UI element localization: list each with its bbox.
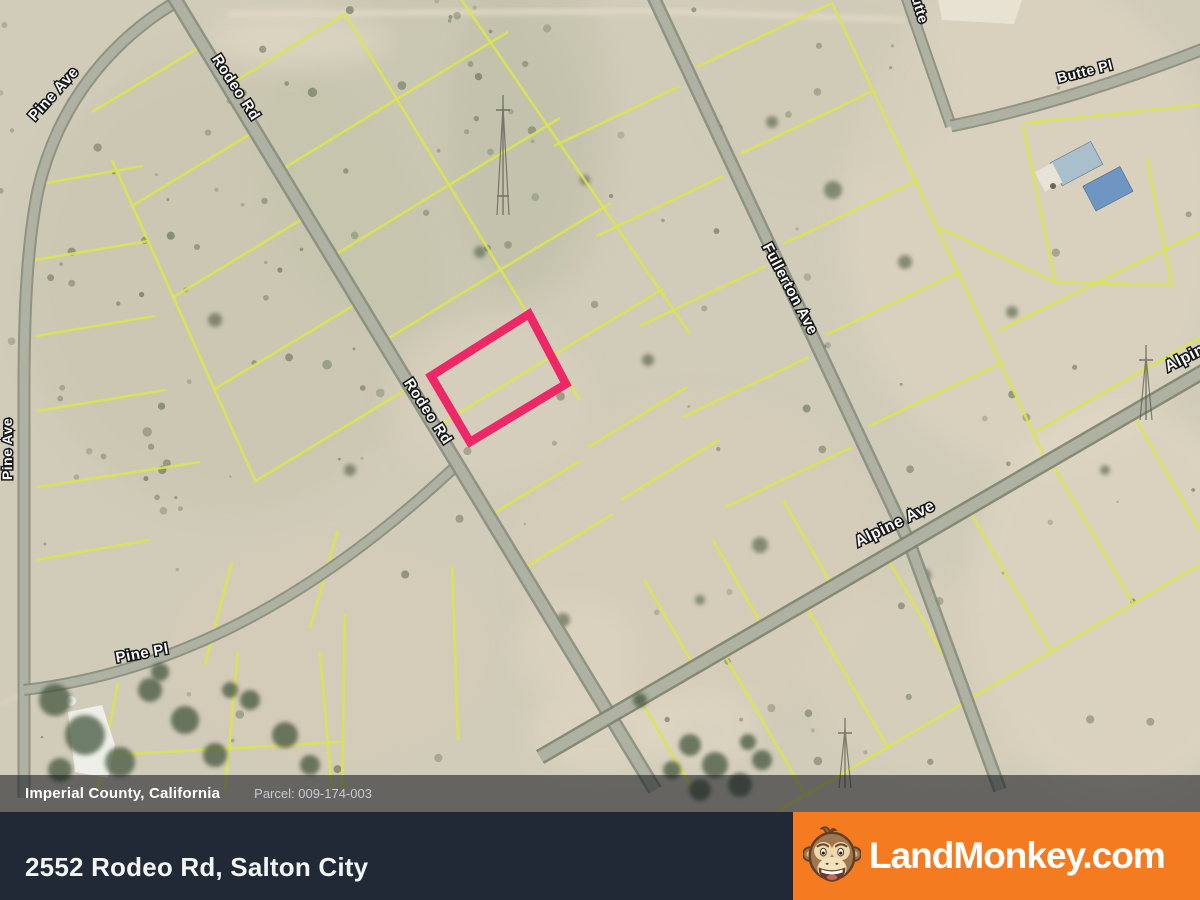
street-label-pine-ave-left: Pine Ave <box>0 418 15 480</box>
county-label: Imperial County, California <box>25 785 220 802</box>
info-bar: Imperial County, California Parcel: 009-… <box>0 775 1200 812</box>
parcel-number-label: Parcel: 009-174-003 <box>254 786 372 801</box>
map-view[interactable]: Pine Ave Rodeo Rd Rodeo Rd Pine Ave Pine… <box>0 0 1200 900</box>
brand-logo[interactable]: LandMonkey.com <box>793 812 1200 900</box>
white-roof-building <box>938 0 1022 24</box>
screenshot-root: Pine Ave Rodeo Rd Rodeo Rd Pine Ave Pine… <box>0 0 1200 900</box>
brand-name: LandMonkey.com <box>869 835 1165 877</box>
address-title: 2552 Rodeo Rd, Salton City <box>25 852 368 883</box>
monkey-face-icon <box>803 825 861 887</box>
